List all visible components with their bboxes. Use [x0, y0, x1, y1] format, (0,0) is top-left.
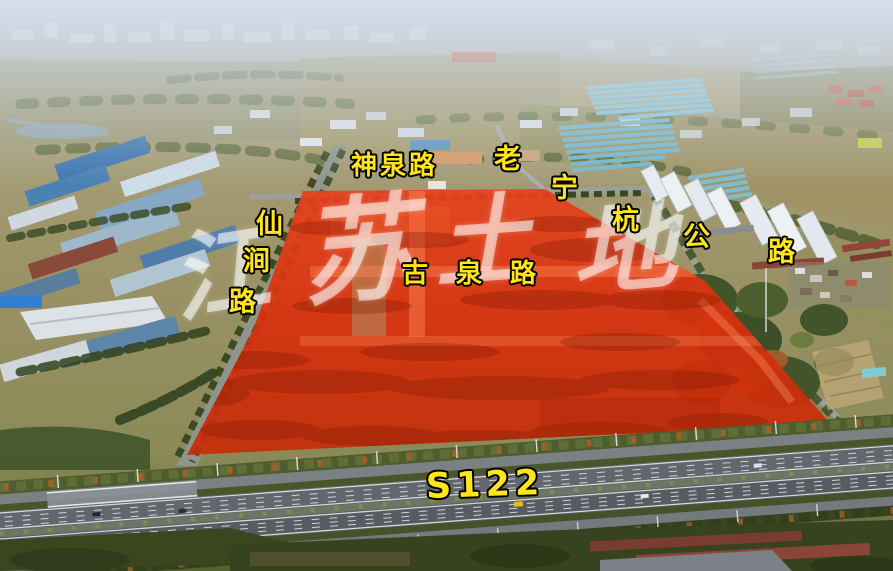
guquan-road-label: 古泉路 [402, 261, 564, 287]
s122-route-label: S122 [425, 466, 544, 505]
shenquan-road-label: 神泉路 [351, 153, 438, 179]
laoninghang-road-label-char: 宁 [551, 175, 578, 202]
laoninghang-road-label-char: 路 [768, 239, 795, 266]
aerial-photo: 江 苏 土 地 神泉路 老 宁 杭 公 路 仙 涧 路 古泉路 S122 [0, 0, 893, 571]
right-village [788, 262, 890, 308]
haze-overlay [0, 0, 893, 185]
xianjian-road-label-char: 路 [229, 289, 256, 316]
xianjian-road-label-char: 仙 [256, 211, 283, 238]
laoninghang-road-label-char: 老 [494, 146, 521, 173]
laoninghang-road-label-char: 杭 [612, 207, 639, 234]
laoninghang-road-label-char: 公 [683, 224, 710, 251]
xianjian-road-label-char: 涧 [243, 248, 270, 275]
watermark-char: 苏 [295, 189, 419, 313]
